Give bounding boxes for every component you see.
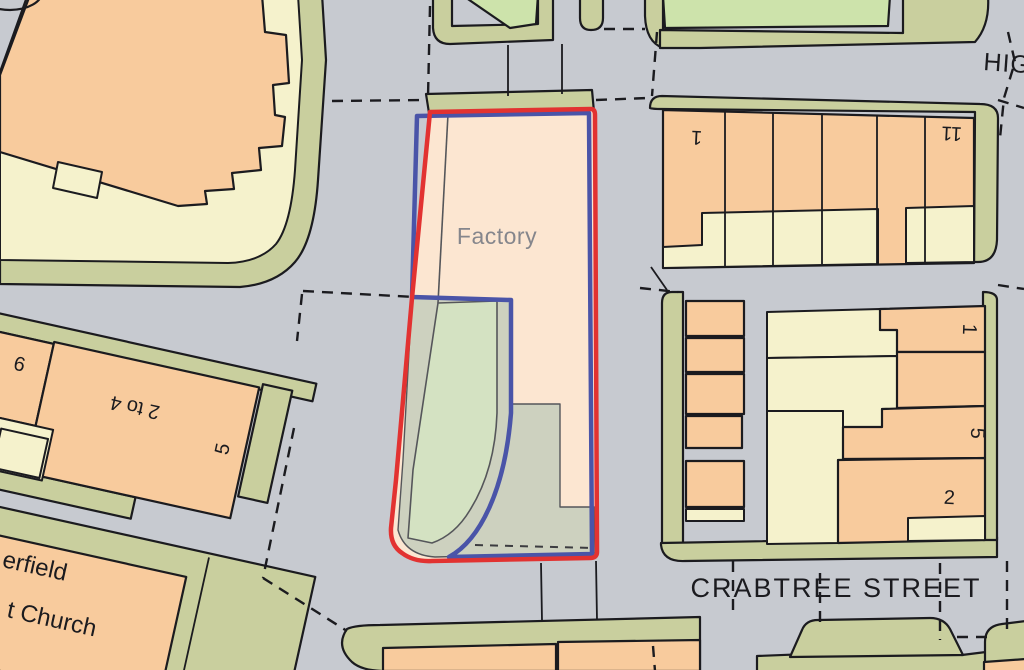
south-building-2: [558, 640, 700, 670]
terrace-block: 1 11: [650, 96, 998, 268]
south-building-1: [383, 644, 556, 670]
small-building-2: [686, 338, 744, 372]
plot-2-rear-yard: [908, 516, 985, 541]
small-building-1: [686, 301, 744, 336]
south-verge-mound: [790, 618, 963, 657]
plot-parcel-cream-c: [767, 411, 843, 544]
plot-2-label: 2: [943, 487, 955, 510]
plot-1-label: 1: [958, 323, 980, 335]
plot-parcel-cream-a: [767, 309, 897, 358]
terrace-house-11-label: 11: [941, 121, 963, 144]
terrace-rear-yards-east: [906, 206, 974, 263]
site-plan-map: Factory 1 11 1 5 2: [0, 0, 1024, 670]
top-right-green-building: [663, 0, 890, 28]
south-building-3: [984, 659, 1024, 670]
plot-5-label: 5: [966, 427, 988, 439]
south-strip: [342, 617, 1024, 670]
high-street-label-partial: HIG: [983, 48, 1024, 79]
small-building-5: [686, 461, 744, 507]
small-building-6: [686, 509, 744, 521]
map-canvas: Factory 1 11 1 5 2: [0, 0, 1024, 670]
top-left-parcel: [0, 0, 326, 287]
top-center-verge-stub: [580, 0, 603, 30]
small-building-4: [686, 416, 742, 448]
east-block: 1 5 2: [661, 292, 997, 561]
top-right-green-parcel: [645, 0, 988, 48]
factory-label: Factory: [457, 223, 537, 249]
small-building-3: [686, 374, 744, 414]
east-block-verge-west: [662, 292, 683, 545]
terrace-house-1-label: 1: [691, 126, 703, 149]
plot-building-b2: [897, 352, 985, 408]
crabtree-street-label: CRABTREE STREET: [690, 573, 981, 603]
